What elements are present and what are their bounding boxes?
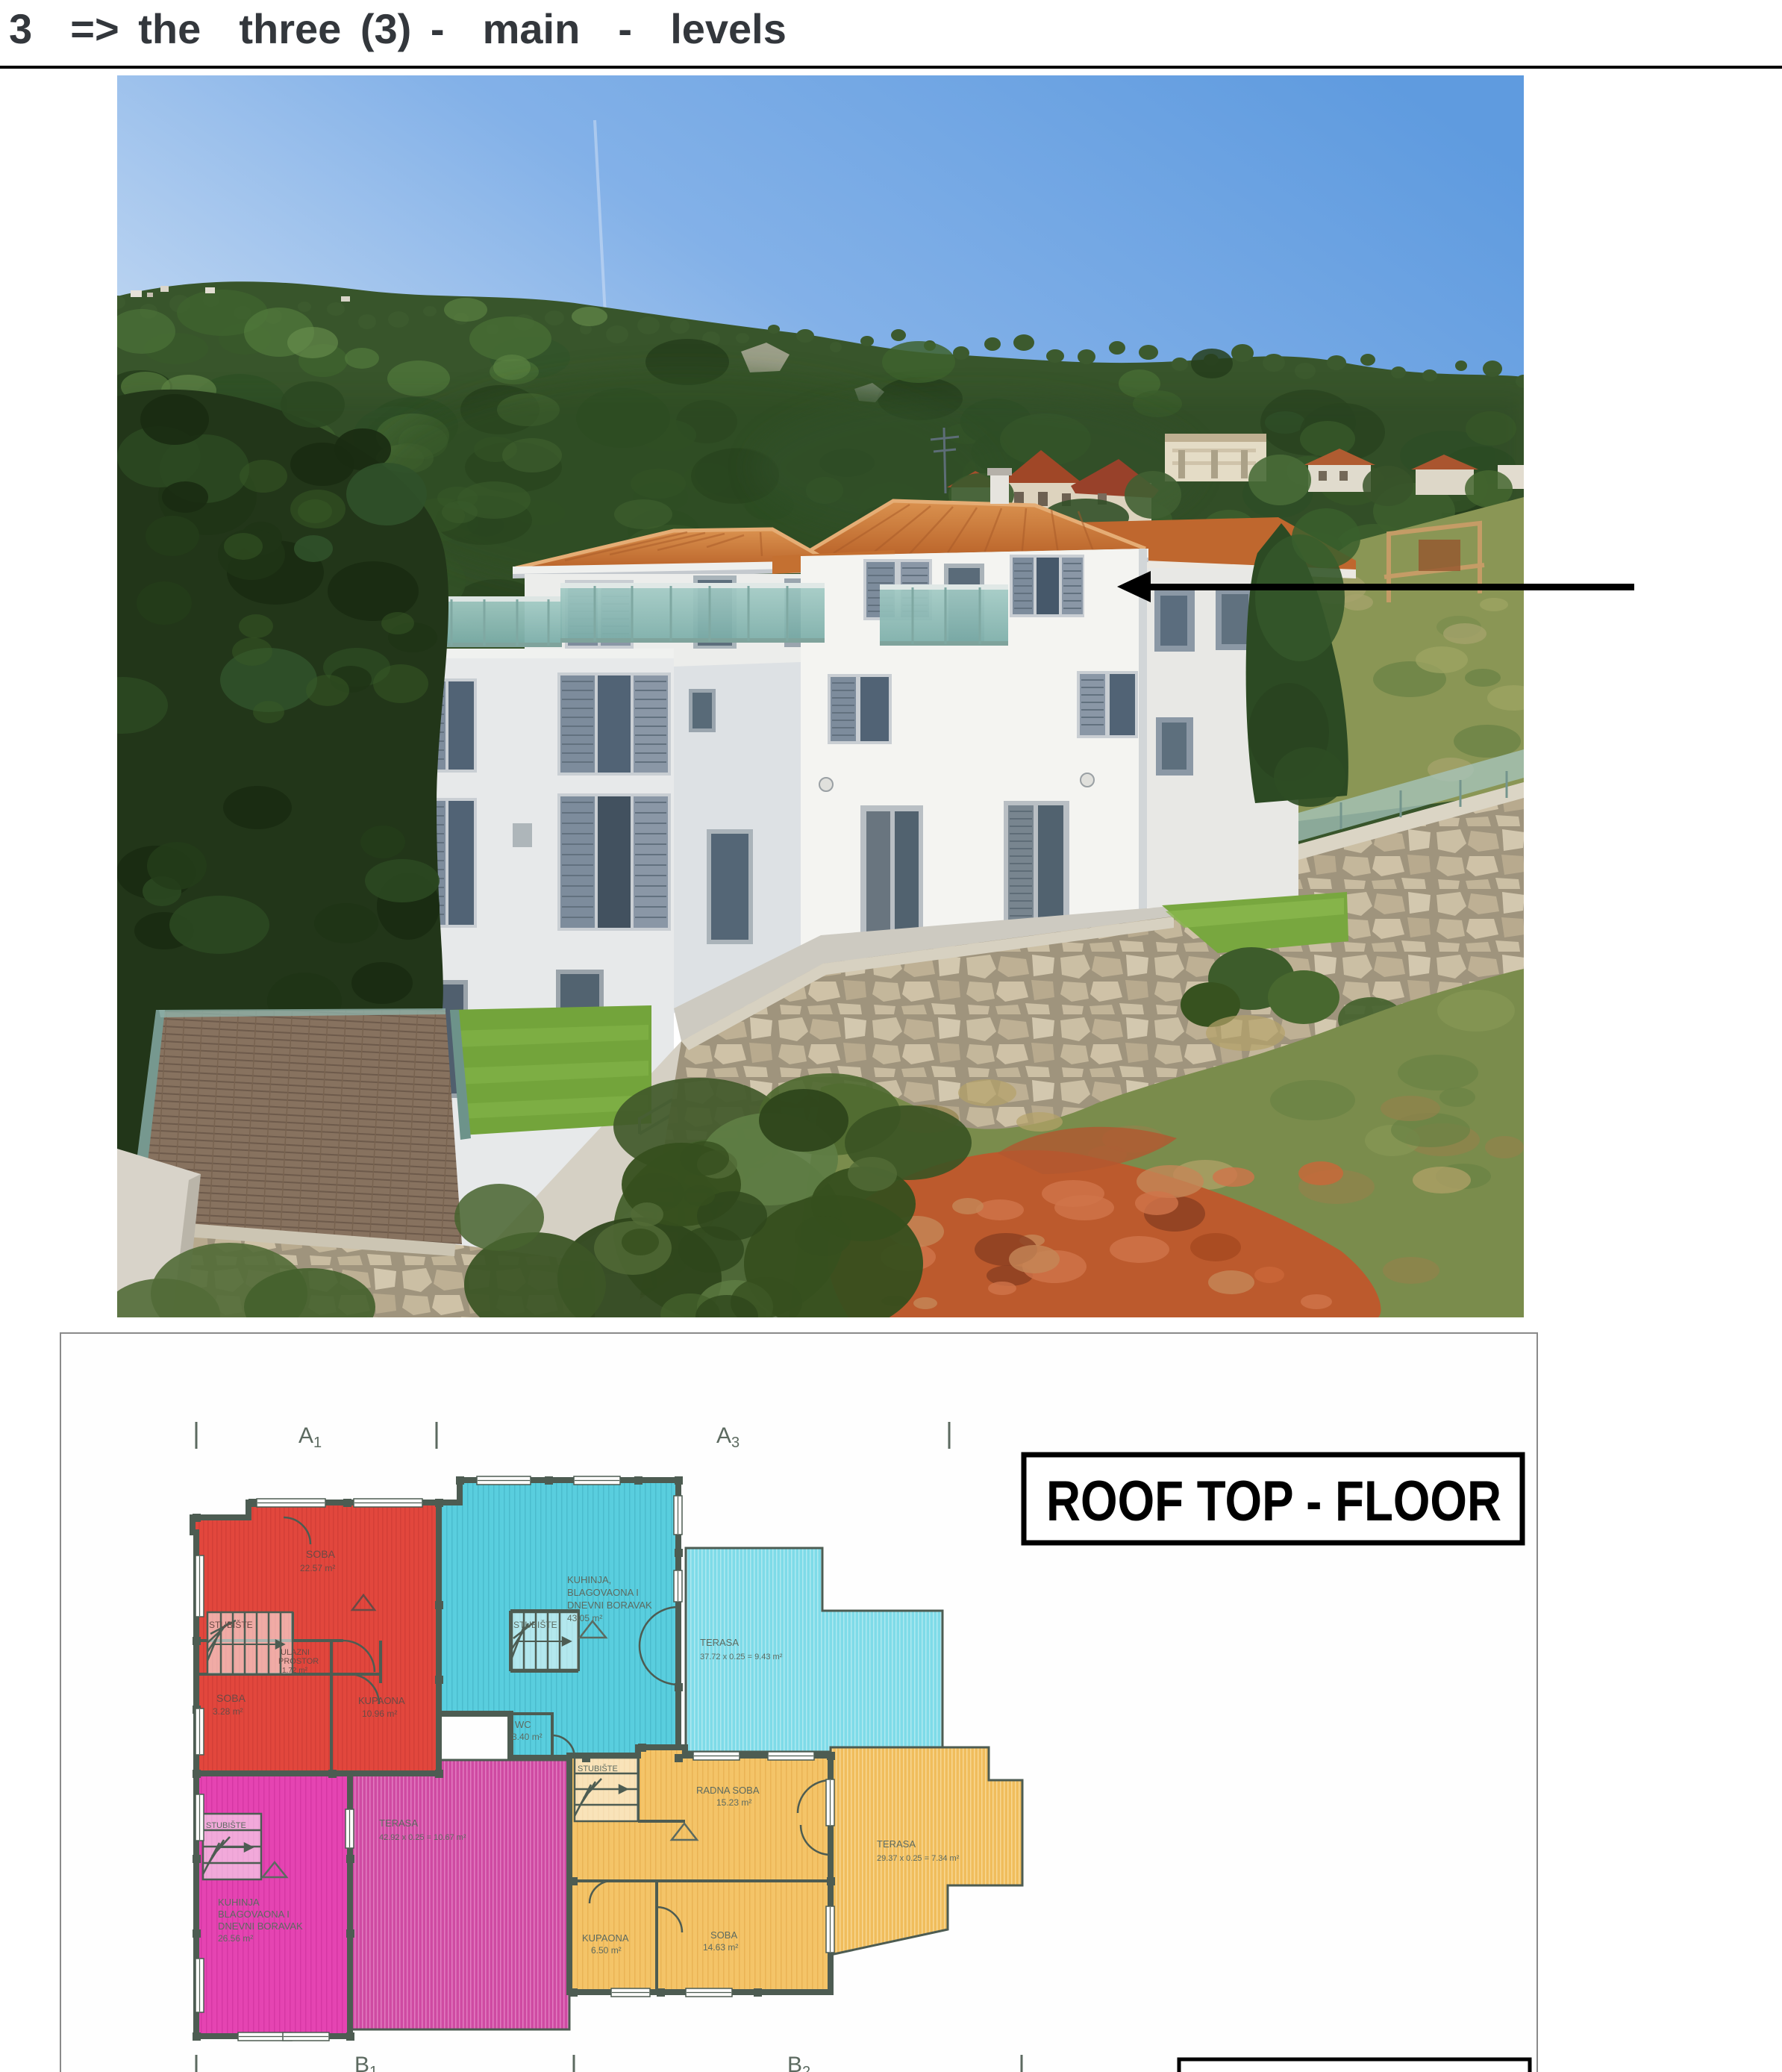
- svg-text:43.05 m²: 43.05 m²: [567, 1613, 602, 1623]
- svg-text:15.23 m²: 15.23 m²: [716, 1797, 751, 1808]
- svg-text:B2: B2: [787, 2053, 810, 2072]
- svg-text:A3: A3: [716, 1423, 740, 1451]
- svg-text:BLAGOVAONA I: BLAGOVAONA I: [567, 1587, 639, 1598]
- svg-text:6.50 m²: 6.50 m²: [591, 1945, 622, 1956]
- svg-text:37.72 x 0.25 = 9.43 m²: 37.72 x 0.25 = 9.43 m²: [700, 1653, 783, 1661]
- svg-text:SOBA: SOBA: [216, 1692, 246, 1704]
- svg-text:B1: B1: [354, 2053, 378, 2072]
- svg-text:STUBIŠTE: STUBIŠTE: [578, 1764, 618, 1773]
- svg-text:42.92 x 0.25 = 10.67 m²: 42.92 x 0.25 = 10.67 m²: [379, 1833, 466, 1842]
- svg-text:KUPAONA: KUPAONA: [358, 1695, 405, 1706]
- svg-text:29.37 x 0.25 = 7.34 m²: 29.37 x 0.25 = 7.34 m²: [877, 1854, 960, 1863]
- svg-text:WC: WC: [515, 1719, 531, 1730]
- svg-text:22.57 m²: 22.57 m²: [300, 1563, 335, 1573]
- svg-text:DNEVNI BORAVAK: DNEVNI BORAVAK: [218, 1920, 303, 1932]
- svg-text:10.96 m²: 10.96 m²: [362, 1709, 397, 1719]
- svg-text:TERASA: TERASA: [700, 1637, 739, 1648]
- svg-text:ULAZNI: ULAZNI: [281, 1648, 310, 1657]
- svg-text:KUHINJA,: KUHINJA,: [567, 1574, 611, 1585]
- svg-text:SOBA: SOBA: [306, 1548, 336, 1560]
- svg-text:KUHINJA: KUHINJA: [218, 1897, 260, 1908]
- svg-text:ROOF TOP - FLOOR: ROOF TOP - FLOOR: [1046, 1470, 1501, 1533]
- svg-text:BLAGOVAONA I: BLAGOVAONA I: [218, 1909, 290, 1920]
- svg-text:TERASA: TERASA: [379, 1817, 418, 1829]
- svg-text:A1: A1: [298, 1423, 322, 1451]
- svg-text:STUBIŠTE: STUBIŠTE: [206, 1820, 246, 1830]
- svg-text:STUBIŠTE: STUBIŠTE: [513, 1619, 557, 1630]
- svg-text:TERASA: TERASA: [877, 1838, 916, 1850]
- svg-text:STUBIŠTE: STUBIŠTE: [209, 1619, 253, 1630]
- svg-text:SOBA: SOBA: [710, 1929, 737, 1941]
- svg-text:14.63 m²: 14.63 m²: [703, 1942, 738, 1953]
- svg-text:DNEVNI BORAVAK: DNEVNI BORAVAK: [567, 1600, 652, 1611]
- svg-text:26.56 m²: 26.56 m²: [218, 1933, 253, 1944]
- svg-text:3.28 m²: 3.28 m²: [213, 1706, 243, 1717]
- svg-text:KUPAONA: KUPAONA: [582, 1932, 629, 1944]
- svg-text:RADNA SOBA: RADNA SOBA: [696, 1785, 760, 1796]
- svg-text:3.40 m²: 3.40 m²: [512, 1732, 543, 1742]
- svg-text:PROSTOR: PROSTOR: [278, 1657, 319, 1666]
- svg-text:1.72 m²: 1.72 m²: [282, 1667, 308, 1675]
